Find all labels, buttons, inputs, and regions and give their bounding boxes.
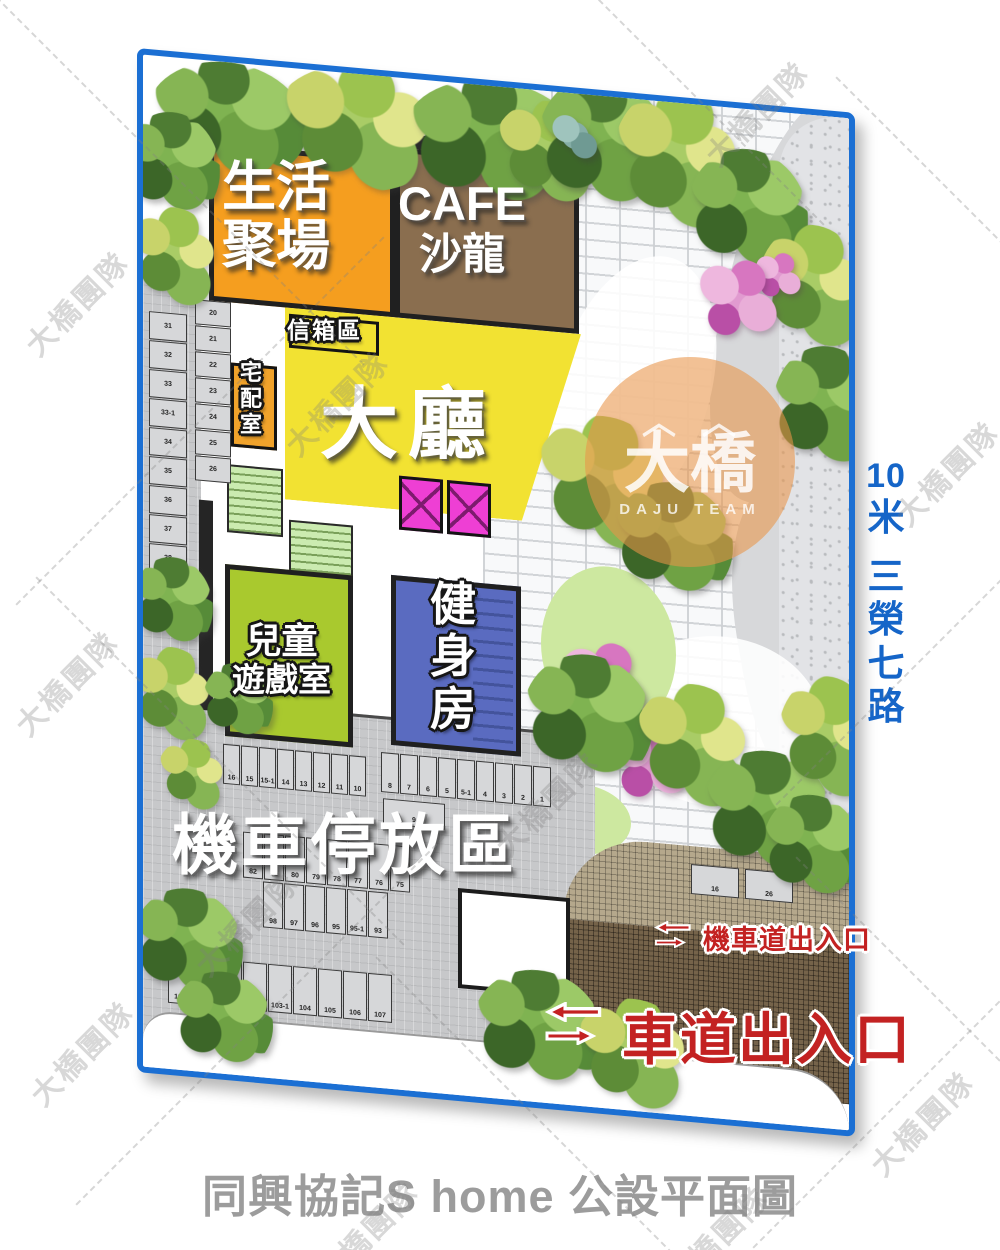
delivery-chip [231,362,277,450]
parking-stall: 37 [149,514,187,545]
parking-stall: 32 [149,340,187,371]
parking-stall-wide: 9 [383,798,445,830]
parking-stall: 11 [331,754,348,796]
parking-stall: 80 [285,835,305,883]
parking-stall: 1 [533,766,551,808]
watermark-team-text: 大橋團隊 [14,240,138,364]
parking-stall: 76 [369,843,389,891]
parking-stall: 107 [368,973,392,1023]
parking-stall: 106 [343,971,367,1021]
parking-stall: 79 [306,837,326,885]
parking-stall: 6 [419,755,437,797]
parking-stall: 82 [243,832,263,880]
parking-stall: 97 [284,883,304,931]
parking-stall: 4 [476,761,494,803]
parking-stall-column: 20212223242526 [195,299,231,483]
elevator [399,476,443,534]
parking-stall: 33 [149,369,187,400]
site-plan-sheet: 31323333-1343536373839 20212223242526 16… [137,48,855,1137]
watermark-team-text: 大橋團隊 [4,620,128,744]
parking-stall: 5 [438,757,456,799]
stairs [227,464,283,537]
watermark-team-text: 大橋團隊 [19,990,143,1114]
gym-equipment [473,594,513,744]
parking-stall: 96 [305,885,325,933]
parking-stall: 9 [383,798,445,830]
parking-stall: 12 [313,752,330,794]
parking-stall: 3 [495,762,513,804]
parking-stall: 21 [195,325,231,353]
parking-stall: 104 [293,966,317,1016]
road-name-label: 10 米 三 榮 七 路 [860,458,912,726]
parking-stall: 23 [195,377,231,405]
parking-stall: 25 [195,429,231,457]
watermark-dashed-line [835,76,1000,445]
parking-stall: 33-1 [149,398,187,429]
parking-stall: 75 [390,845,410,893]
parking-stall: 14 [277,749,294,791]
parking-stall: 7 [400,754,418,796]
parking-stall: 22 [195,351,231,379]
parking-stall: 98 [263,881,283,929]
parking-stall: 105 [318,968,342,1018]
parking-stall: 35 [149,456,187,487]
parking-stall: 24 [195,403,231,431]
parking-stall: 8 [381,752,399,794]
parking-stall: 78 [327,839,347,887]
parking-stall: 77 [348,841,368,889]
parking-stall: 2 [514,764,532,806]
parking-stall: 5-1 [457,759,475,801]
elevator [447,480,491,538]
parking-stall: 34 [149,427,187,458]
parking-stall: 95-1 [347,889,367,937]
parking-stall: 31 [149,311,187,342]
parking-stall: 95 [326,887,346,935]
parking-stall: 10 [349,755,366,797]
parking-stall: 36 [149,485,187,516]
parking-stall: 93 [368,891,388,939]
parking-stall: 103-1 [268,964,292,1014]
stairs [289,520,353,578]
parking-stall: 16 [691,864,739,898]
flyer-caption: 同興協記S home 公設平面圖 [0,1160,1000,1225]
parking-stall: 26 [195,455,231,483]
parking-stall: 15-1 [259,747,276,789]
parking-stall: 81 [264,833,284,881]
parking-stall: 15 [241,745,258,787]
floorplan-flyer: { "caption": "同興協記S home 公設平面圖", "road":… [0,0,1000,1250]
parking-stall: 13 [295,750,312,792]
